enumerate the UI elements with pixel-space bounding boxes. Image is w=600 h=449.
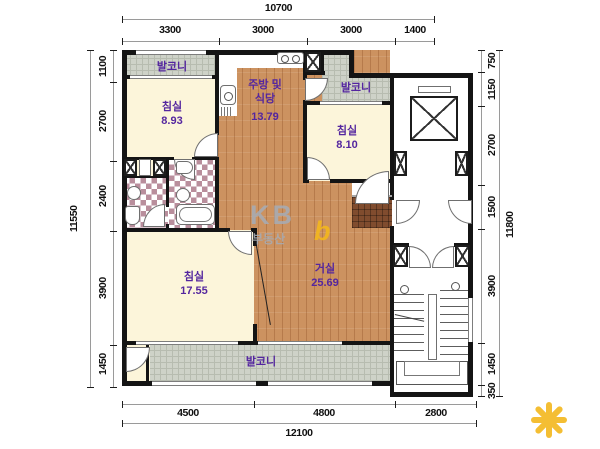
dim-line xyxy=(499,50,500,397)
dim-tick xyxy=(122,38,123,45)
window xyxy=(258,341,342,345)
dim-line xyxy=(122,19,435,20)
room-area: 8.93 xyxy=(134,114,210,128)
dim-line xyxy=(113,50,114,388)
room-name: 침실 xyxy=(134,100,210,114)
dim-tick xyxy=(476,420,477,427)
dim-tick xyxy=(122,401,123,408)
window xyxy=(136,341,238,345)
wall xyxy=(166,157,169,207)
dim-line xyxy=(90,50,91,388)
dim-seg-bottom: 4800 xyxy=(294,407,354,420)
dim-seg-top: 1400 xyxy=(385,24,445,37)
dim-tick xyxy=(476,401,477,408)
door-arc xyxy=(396,200,420,224)
closet-shelf xyxy=(139,159,151,176)
wall xyxy=(393,392,473,397)
stair-treads-right xyxy=(440,290,470,358)
dim-line xyxy=(122,41,435,42)
window xyxy=(130,75,212,79)
room-label-bedroom-top-left: 침실 8.93 xyxy=(134,100,210,128)
dim-tick xyxy=(87,387,94,388)
dim-seg-top: 3000 xyxy=(321,24,381,37)
floor-plan: 발코니 침실 8.93 주방 및 식당 13.79 발코니 침실 8.10 침실… xyxy=(0,0,600,449)
dim-seg-left: 2700 xyxy=(97,91,111,151)
dim-seg-right: 1150 xyxy=(486,59,500,119)
dim-total-right: 11800 xyxy=(504,195,518,255)
dim-seg-top: 3000 xyxy=(233,24,293,37)
kb-subtext: 부동산 xyxy=(252,230,285,247)
window xyxy=(136,50,206,55)
dim-seg-left: 3900 xyxy=(97,258,111,318)
dim-tick xyxy=(478,106,485,107)
dim-total-bottom: 12100 xyxy=(269,427,329,440)
room-label-living: 거실 25.69 xyxy=(285,262,365,290)
dim-tick xyxy=(307,38,308,45)
dim-tick xyxy=(395,38,396,45)
room-name: 발코니 xyxy=(157,61,187,73)
dim-tick xyxy=(496,396,503,397)
burner-icon xyxy=(292,55,300,63)
door-arc xyxy=(409,246,431,268)
room-label-kitchen: 주방 및 식당 13.79 xyxy=(235,78,295,124)
wall xyxy=(215,157,219,232)
wall xyxy=(124,176,168,178)
room-label-bedroom-main: 침실 17.55 xyxy=(152,270,236,298)
kb-brand-text: KB xyxy=(250,200,295,231)
dim-tick xyxy=(122,420,123,427)
dim-tick xyxy=(478,185,485,186)
toilet-icon xyxy=(125,206,140,225)
dim-seg-right: 2700 xyxy=(486,115,500,175)
dim-seg-left: 1450 xyxy=(97,334,111,394)
dim-seg-right: 3900 xyxy=(486,256,500,316)
dim-tick xyxy=(110,50,117,51)
wall xyxy=(215,50,219,135)
room-name: 침실 xyxy=(310,124,384,138)
kitchen-sink-icon xyxy=(220,85,236,105)
duct-icon xyxy=(455,245,470,267)
stair-rail xyxy=(428,294,437,360)
dim-tick xyxy=(478,50,485,51)
bathtub-inner xyxy=(179,207,212,222)
closet-icon xyxy=(305,52,321,72)
room-name: 발코니 xyxy=(341,82,371,94)
vent-lines xyxy=(221,107,233,116)
dim-tick xyxy=(110,161,117,162)
window xyxy=(468,298,473,342)
window xyxy=(268,381,372,386)
wall xyxy=(122,228,230,232)
dim-tick xyxy=(110,231,117,232)
sink-icon xyxy=(176,188,190,202)
dim-tick xyxy=(478,396,485,397)
room-name: 거실 xyxy=(285,262,365,276)
kb-watermark: KB 부동산 b xyxy=(246,198,361,256)
dim-total-top: 10700 xyxy=(122,2,435,15)
bathtub-icon xyxy=(176,204,215,225)
room-label-balcony-top-left: 발코니 xyxy=(134,60,210,74)
closet-icon xyxy=(153,159,166,176)
dim-seg-bottom: 2800 xyxy=(406,407,466,420)
wall xyxy=(349,73,473,78)
room-area: 25.69 xyxy=(285,276,365,290)
dim-tick xyxy=(110,345,117,346)
dim-tick xyxy=(478,343,485,344)
stair-newel-right xyxy=(451,282,460,291)
room-name: 식당 xyxy=(235,92,295,106)
dim-tick xyxy=(110,82,117,83)
room-label-balcony-bottom: 발코니 xyxy=(226,355,296,369)
dim-seg-left: 2400 xyxy=(97,166,111,226)
dim-tick xyxy=(110,387,117,388)
sink-icon xyxy=(127,186,141,200)
room-area: 8.10 xyxy=(310,138,384,152)
dim-seg-right: 1500 xyxy=(486,177,500,237)
floor-balcony-top-right-a xyxy=(322,52,352,76)
room-label-balcony-top-right: 발코니 xyxy=(324,81,388,95)
dim-tick xyxy=(122,16,123,23)
dim-total-left: 11550 xyxy=(68,189,82,249)
wall xyxy=(468,73,473,397)
dim-tick xyxy=(478,229,485,230)
dim-seg-left: 1100 xyxy=(97,36,111,96)
room-area: 13.79 xyxy=(235,110,295,124)
window xyxy=(152,381,256,386)
kb-logo-letter: b xyxy=(314,216,331,247)
elevator-icon xyxy=(410,96,458,141)
door-arc xyxy=(432,246,454,268)
dim-tick xyxy=(478,72,485,73)
dim-tick xyxy=(434,16,435,23)
dim-seg-bottom: 4500 xyxy=(158,407,218,420)
duct-icon xyxy=(455,151,468,176)
stair-treads-left xyxy=(394,294,424,358)
door-arc xyxy=(448,200,472,224)
elevator-door xyxy=(418,86,451,93)
closet-icon xyxy=(124,159,137,176)
room-name: 주방 및 xyxy=(235,78,295,92)
dim-tick xyxy=(254,401,255,408)
dim-seg-top: 3300 xyxy=(140,24,200,37)
stair-newel-left xyxy=(400,285,409,294)
dim-line xyxy=(481,50,482,397)
window xyxy=(320,101,382,105)
toilet-icon xyxy=(176,161,193,174)
sink-drain xyxy=(224,92,233,101)
dim-tick xyxy=(87,50,94,51)
room-name: 침실 xyxy=(152,270,236,284)
dim-tick xyxy=(496,50,503,51)
dim-line xyxy=(122,404,477,405)
stair-landing-inner xyxy=(404,361,460,376)
room-area: 17.55 xyxy=(152,284,236,298)
dim-tick xyxy=(478,385,485,386)
duct-icon xyxy=(394,151,407,176)
room-label-bedroom-right: 침실 8.10 xyxy=(310,124,384,152)
room-name: 발코니 xyxy=(246,356,276,368)
stove-icon xyxy=(277,52,304,64)
burner-icon xyxy=(281,55,289,63)
dim-tick xyxy=(219,38,220,45)
duct-icon xyxy=(393,245,408,267)
dim-seg-right: 350 xyxy=(486,361,500,421)
dim-line xyxy=(122,423,477,424)
dim-tick xyxy=(434,38,435,45)
dim-tick xyxy=(395,401,396,408)
